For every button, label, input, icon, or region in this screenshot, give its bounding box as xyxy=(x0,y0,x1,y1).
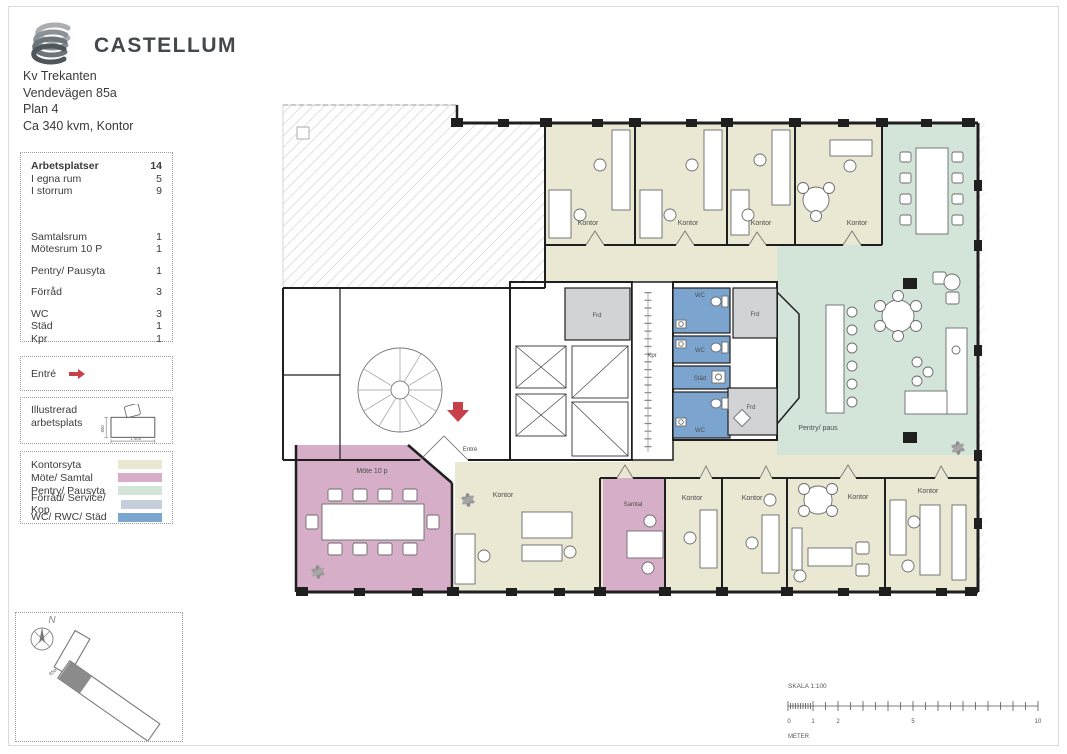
castellum-logo: CASTELLUM xyxy=(20,16,250,68)
castellum-logo-text: CASTELLUM xyxy=(94,34,237,57)
project-info: Kv Trekanten Vendevägen 85a Plan 4 Ca 34… xyxy=(23,68,133,134)
facts-row: Förråd3 xyxy=(31,286,162,299)
facts-label: Förråd xyxy=(31,286,62,299)
project-area: Ca 340 kvm, Kontor xyxy=(23,118,133,135)
room-label: WC xyxy=(695,293,706,299)
facts-label: Mötesrum 10 P xyxy=(31,243,102,256)
room-frd-right-2 xyxy=(728,388,777,435)
siteplan: N 85a xyxy=(16,613,182,741)
legend-swatch-storage xyxy=(121,500,162,509)
facts-value: 1 xyxy=(156,231,162,244)
scale-tick: 2 xyxy=(836,719,840,725)
legend-swatch-wc xyxy=(118,513,162,522)
workstation-key-line2: arbetsplats xyxy=(31,417,82,430)
room-label: Entré xyxy=(463,447,478,453)
facts-value: 1 xyxy=(156,333,162,346)
desk-depth-dim: 800 xyxy=(100,425,105,433)
facts-row: Städ1 xyxy=(31,320,162,333)
facts-value: 9 xyxy=(156,185,162,198)
scale-unit: METER xyxy=(788,734,810,740)
stairwell xyxy=(358,348,442,432)
facts-value: 1 xyxy=(156,265,162,278)
unleased-area-hatch xyxy=(283,105,545,288)
facts-row: Pentry/ Pausyta1 xyxy=(31,265,162,278)
room-label: Kontor xyxy=(847,220,868,227)
legend-label: WC/ RWC/ Städ xyxy=(31,511,107,523)
room-label: Kontor xyxy=(678,220,699,227)
room-label: WC xyxy=(695,348,706,354)
room-label: Städ xyxy=(694,376,706,382)
room-label: Kontor xyxy=(918,488,939,495)
entrance-key: Entré xyxy=(20,356,173,391)
room-label: Frd xyxy=(593,313,602,319)
workstation-desk-icon: 800 1 600 xyxy=(98,404,164,444)
facts-row: I egna rum5 xyxy=(31,173,162,186)
legend-row: Kontorsyta xyxy=(31,458,162,471)
facts-label: Städ xyxy=(31,320,53,333)
facts-panel: Arbetsplatser14 I egna rum5 I storrum9 S… xyxy=(20,152,173,342)
workstation-key-label: Illustrerad arbetsplats xyxy=(31,404,82,430)
scale-title: SKALA 1:100 xyxy=(788,683,827,690)
area-legend: Kontorsyta Möte/ Samtal Pentry/ Pausyta … xyxy=(20,451,173,524)
entrance-arrow-icon xyxy=(68,368,86,380)
room-label: Kontor xyxy=(742,495,763,502)
facts-value: 14 xyxy=(150,160,162,173)
scale-ruler xyxy=(788,701,1038,711)
facts-value: 1 xyxy=(156,320,162,333)
castellum-logo-icon xyxy=(34,25,68,62)
scale-tick: 5 xyxy=(911,719,915,725)
desk-width-dim: 1 600 xyxy=(130,436,141,441)
room-label: Pentry/ paus xyxy=(798,425,838,432)
facts-value: 3 xyxy=(156,286,162,299)
facts-label: I storrum xyxy=(31,185,72,198)
room-kpr xyxy=(632,282,673,460)
room-label: Möte 10 p xyxy=(356,468,387,475)
legend-label: Kontorsyta xyxy=(31,459,81,471)
legend-row: Möte/ Samtal xyxy=(31,471,162,484)
floor-plan: Kontor Kontor Kontor Kontor Frd Kpr WC W… xyxy=(275,85,985,610)
facts-row: Kpr1 xyxy=(31,333,162,346)
facts-row: I storrum9 xyxy=(31,185,162,198)
north-label: N xyxy=(48,615,56,626)
room-label: Frd xyxy=(747,405,756,411)
north-compass-icon: N xyxy=(31,615,56,650)
legend-row: Förråd/ Service/ Kop xyxy=(31,498,162,511)
room-label: Kontor xyxy=(493,492,514,499)
facts-label: Pentry/ Pausyta xyxy=(31,265,105,278)
legend-label: Möte/ Samtal xyxy=(31,472,93,484)
facts-label: WC xyxy=(31,308,49,321)
facts-row: Arbetsplatser14 xyxy=(31,160,162,173)
room-label: Kontor xyxy=(578,220,599,227)
scale-tick: 1 xyxy=(811,719,815,725)
facts-row: Samtalsrum1 xyxy=(31,231,162,244)
room-label: Samtal xyxy=(624,502,643,508)
room-label: Kontor xyxy=(848,494,869,501)
siteplan-box: N 85a xyxy=(15,612,183,742)
scale-tick: 10 xyxy=(1035,719,1042,725)
workstation-key: Illustrerad arbetsplats 800 1 600 xyxy=(20,397,173,444)
facts-row: Mötesrum 10 P1 xyxy=(31,243,162,256)
facts-value: 5 xyxy=(156,173,162,186)
floorplan-sheet: CASTELLUM Kv Trekanten Vendevägen 85a Pl… xyxy=(0,0,1067,754)
scale-bar: SKALA 1:100 0 1 2 5 10 METE xyxy=(786,678,1048,742)
facts-label: Samtalsrum xyxy=(31,231,87,244)
facts-value: 3 xyxy=(156,308,162,321)
facts-row: WC3 xyxy=(31,308,162,321)
workstation-key-line1: Illustrerad xyxy=(31,404,82,417)
legend-swatch-meeting xyxy=(118,473,162,482)
siteplan-building-outline xyxy=(54,631,160,741)
room-label: WC xyxy=(695,428,706,434)
room-label: Kontor xyxy=(682,495,703,502)
facts-label: Kpr xyxy=(31,333,47,346)
room-label: Kpr xyxy=(647,353,656,359)
scale-tick: 0 xyxy=(787,719,791,725)
project-floor: Plan 4 xyxy=(23,101,133,118)
room-label: Kontor xyxy=(751,220,772,227)
entrance-key-label: Entré xyxy=(31,368,56,380)
facts-label: Arbetsplatser xyxy=(31,160,99,173)
legend-swatch-pantry xyxy=(118,486,162,495)
facts-value: 1 xyxy=(156,243,162,256)
facts-label: I egna rum xyxy=(31,173,81,186)
legend-swatch-office xyxy=(118,460,162,469)
project-street: Vendevägen 85a xyxy=(23,85,133,102)
scale-tick-labels: 0 1 2 5 10 xyxy=(787,719,1042,725)
room-label: Frd xyxy=(751,312,760,318)
project-name: Kv Trekanten xyxy=(23,68,133,85)
legend-row: WC/ RWC/ Städ xyxy=(31,511,162,524)
shaft-detail xyxy=(297,127,309,139)
